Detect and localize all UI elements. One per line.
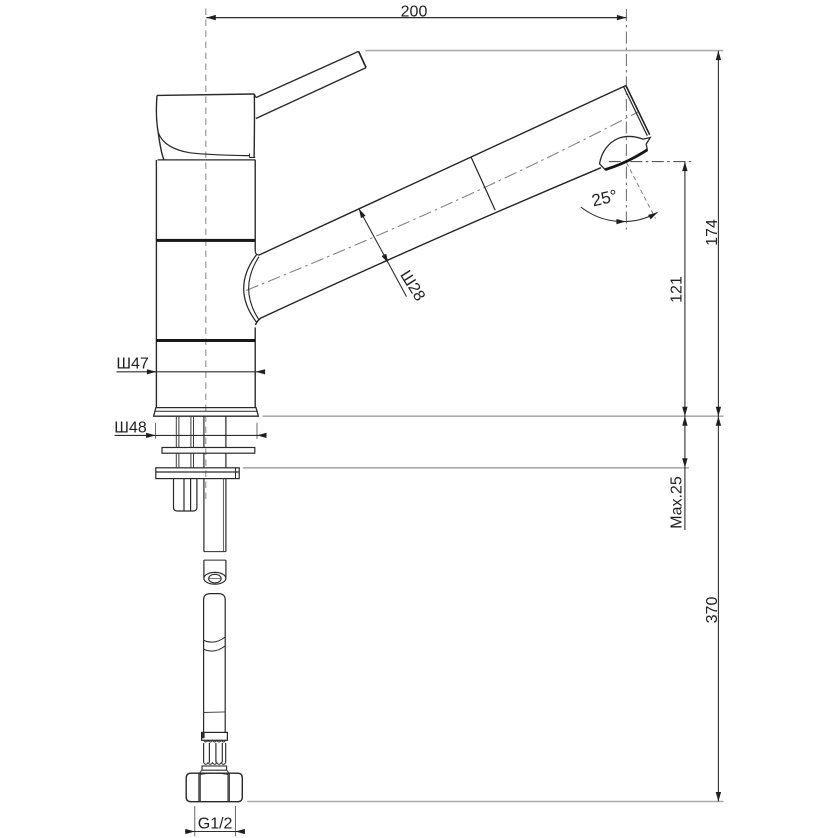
svg-text:Max.25: Max.25: [669, 476, 686, 529]
svg-text:Ш48: Ш48: [114, 419, 147, 436]
svg-text:200: 200: [401, 3, 428, 20]
svg-text:G1/2: G1/2: [198, 816, 233, 833]
svg-text:121: 121: [669, 276, 686, 303]
svg-text:Ш47: Ш47: [116, 356, 149, 373]
svg-text:174: 174: [704, 219, 721, 246]
svg-text:370: 370: [704, 597, 721, 624]
svg-text:25°: 25°: [590, 186, 619, 210]
